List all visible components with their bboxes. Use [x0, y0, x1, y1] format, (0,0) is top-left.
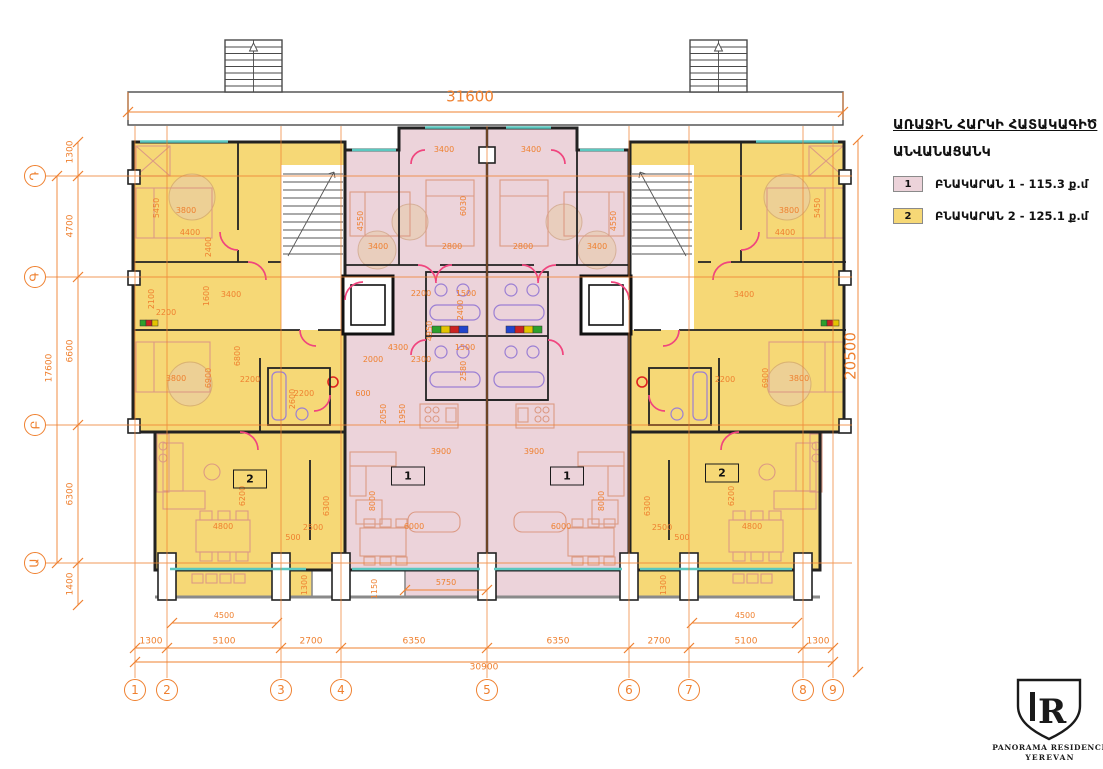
dimension-label: 2800	[513, 243, 533, 251]
dimension-label: 1300	[140, 638, 163, 647]
dimension-label: 6600	[67, 340, 76, 363]
stair-treads	[225, 40, 747, 92]
unit-number-label: 1	[550, 467, 584, 486]
dimension-label: 5750	[436, 579, 456, 587]
legend-swatch-1: 1	[893, 176, 923, 192]
dimension-label: 6800	[234, 346, 242, 366]
legend-label-2: ԲՆԱԿԱՐԱՆ 2 - 125.1 ք.մ	[935, 209, 1088, 223]
dimension-label: 3400	[368, 243, 388, 251]
floor-plan-sheet: R 31600205001300510027006350635027005100…	[0, 0, 1103, 769]
dimension-label: 4950	[426, 321, 434, 341]
dimension-label: 20500	[844, 332, 859, 380]
legend-item-apartment-1: 1 ԲՆԱԿԱՐԱՆ 1 - 115.3 ք.մ	[893, 176, 1103, 192]
dimension-label: 1150	[371, 579, 379, 599]
dimension-label: 4700	[67, 215, 76, 238]
dimension-label: 6200	[728, 486, 736, 506]
dimension-label: 4550	[610, 211, 618, 231]
legend-swatch-2: 2	[893, 208, 923, 224]
dimension-label: 1300	[807, 638, 830, 647]
dimension-label: 3400	[734, 291, 754, 299]
dimension-label: 8000	[598, 491, 606, 511]
dimension-label: 6350	[403, 638, 426, 647]
dimension-label: 4400	[775, 229, 795, 237]
dimension-label: 2400	[205, 237, 213, 257]
unit-number-label: 1	[391, 467, 425, 486]
plan-title: ԱՌԱՋԻՆ ՀԱՐԿԻ ՀԱՏԱԿԱԳԻԾ	[893, 118, 1103, 133]
grid-axis-bubble-7: 7	[678, 679, 700, 701]
dimension-label: 1500	[456, 290, 476, 298]
dimension-label: 3400	[587, 243, 607, 251]
brand-name: PANORAMA RESIDENCE	[992, 743, 1103, 752]
dimension-label: 6300	[67, 483, 76, 506]
dimension-label: 3400	[434, 146, 454, 154]
dimension-label: 1600	[203, 286, 211, 306]
unit-number-label: 2	[705, 464, 739, 483]
brand-logo-shield: R	[1018, 680, 1080, 739]
dimension-label: 8000	[369, 491, 377, 511]
dimension-label: 6900	[762, 368, 770, 388]
dimension-label: 17600	[46, 354, 55, 383]
dimension-label: 600	[355, 390, 370, 398]
dimension-label: 2050	[380, 404, 388, 424]
dimension-label: 6200	[239, 486, 247, 506]
legend-item-apartment-2: 2 ԲՆԱԿԱՐԱՆ 2 - 125.1 ք.մ	[893, 208, 1103, 224]
grid-axis-bubble-4: 4	[330, 679, 352, 701]
dimension-label: 6350	[547, 638, 570, 647]
brand-city: YEREVAN	[992, 753, 1103, 762]
unit-number-label: 2	[233, 470, 267, 489]
dimension-label: 4400	[180, 229, 200, 237]
grid-axis-bubble-Ա: Ա	[24, 552, 46, 574]
dimension-label: 2700	[648, 638, 671, 647]
dimension-label: 2200	[715, 376, 735, 384]
dimension-label: 5100	[735, 638, 758, 647]
dimension-label: 5450	[153, 198, 161, 218]
grid-axis-bubble-6: 6	[618, 679, 640, 701]
dimension-label: 2200	[240, 376, 260, 384]
dimension-label: 3400	[521, 146, 541, 154]
dimension-label: 1400	[67, 573, 76, 596]
dimension-label: 6300	[323, 496, 331, 516]
dimension-label: 3900	[524, 448, 544, 456]
dimension-label: 3800	[779, 207, 799, 215]
dimension-label: 3800	[166, 375, 186, 383]
dimension-label: 500	[285, 534, 300, 542]
dimension-label: 5100	[213, 638, 236, 647]
dimension-label: 1300	[660, 575, 668, 595]
dimension-label: 2800	[442, 243, 462, 251]
dimension-label: 4800	[742, 523, 762, 531]
dimension-label: 2580	[460, 361, 468, 381]
grid-axis-bubble-8: 8	[792, 679, 814, 701]
grid-axis-bubble-2: 2	[156, 679, 178, 701]
dimension-label: 3800	[176, 207, 196, 215]
dimension-label: 4800	[213, 523, 233, 531]
dimension-label: 3900	[431, 448, 451, 456]
dimension-label: 4300	[388, 344, 408, 352]
legend-label-1: ԲՆԱԿԱՐԱՆ 1 - 115.3 ք.մ	[935, 177, 1088, 191]
dimension-label: 2100	[148, 289, 156, 309]
grid-axis-bubble-3: 3	[270, 679, 292, 701]
dimension-label: 6300	[644, 496, 652, 516]
dimension-label: 2000	[363, 356, 383, 364]
dimension-label: 3800	[789, 375, 809, 383]
dimension-label: 2500	[652, 524, 672, 532]
grid-axis-bubble-1: 1	[124, 679, 146, 701]
dimension-label: 4500	[214, 612, 234, 620]
dimension-label: 1500	[455, 344, 475, 352]
dimension-label: 500	[674, 534, 689, 542]
grid-axis-bubble-Դ: Դ	[24, 165, 46, 187]
dimension-label: 2400	[457, 300, 465, 320]
dimension-label: 4550	[357, 211, 365, 231]
dimension-label: 6000	[551, 523, 571, 531]
grid-axis-bubble-9: 9	[822, 679, 844, 701]
grid-axis-bubble-Բ: Բ	[24, 414, 46, 436]
dimension-label: 2700	[300, 638, 323, 647]
svg-text:R: R	[1038, 692, 1067, 732]
floor-plan-drawing: R	[0, 0, 1103, 769]
legend: ԱՌԱՋԻՆ ՀԱՐԿԻ ՀԱՏԱԿԱԳԻԾ ԱՆՎԱՆԱՑԱՆԿ 1 ԲՆԱԿ…	[893, 118, 1103, 224]
dimension-label: 2300	[411, 356, 431, 364]
dimension-label: 6000	[404, 523, 424, 531]
dimension-label: 2200	[411, 290, 431, 298]
dimension-label: 6030	[460, 196, 468, 216]
dimension-label: 5450	[814, 198, 822, 218]
dimension-label: 2500	[303, 524, 323, 532]
dimension-label: 30900	[470, 664, 499, 673]
dimension-label: 31600	[446, 90, 494, 105]
legend-subtitle: ԱՆՎԱՆԱՑԱՆԿ	[893, 145, 1103, 160]
dimension-label: 4500	[735, 612, 755, 620]
dimension-label: 2200	[294, 390, 314, 398]
grid-axis-bubble-Գ: Գ	[24, 266, 46, 288]
dimension-label: 2200	[156, 309, 176, 317]
dimension-label: 3400	[221, 291, 241, 299]
dimension-label: 1950	[399, 404, 407, 424]
dimension-label: 1300	[67, 141, 76, 164]
brand-logo-text: PANORAMA RESIDENCE YEREVAN	[992, 743, 1103, 762]
dimension-label: 6900	[205, 368, 213, 388]
dimension-label: 1300	[301, 575, 309, 595]
grid-axis-bubble-5: 5	[476, 679, 498, 701]
